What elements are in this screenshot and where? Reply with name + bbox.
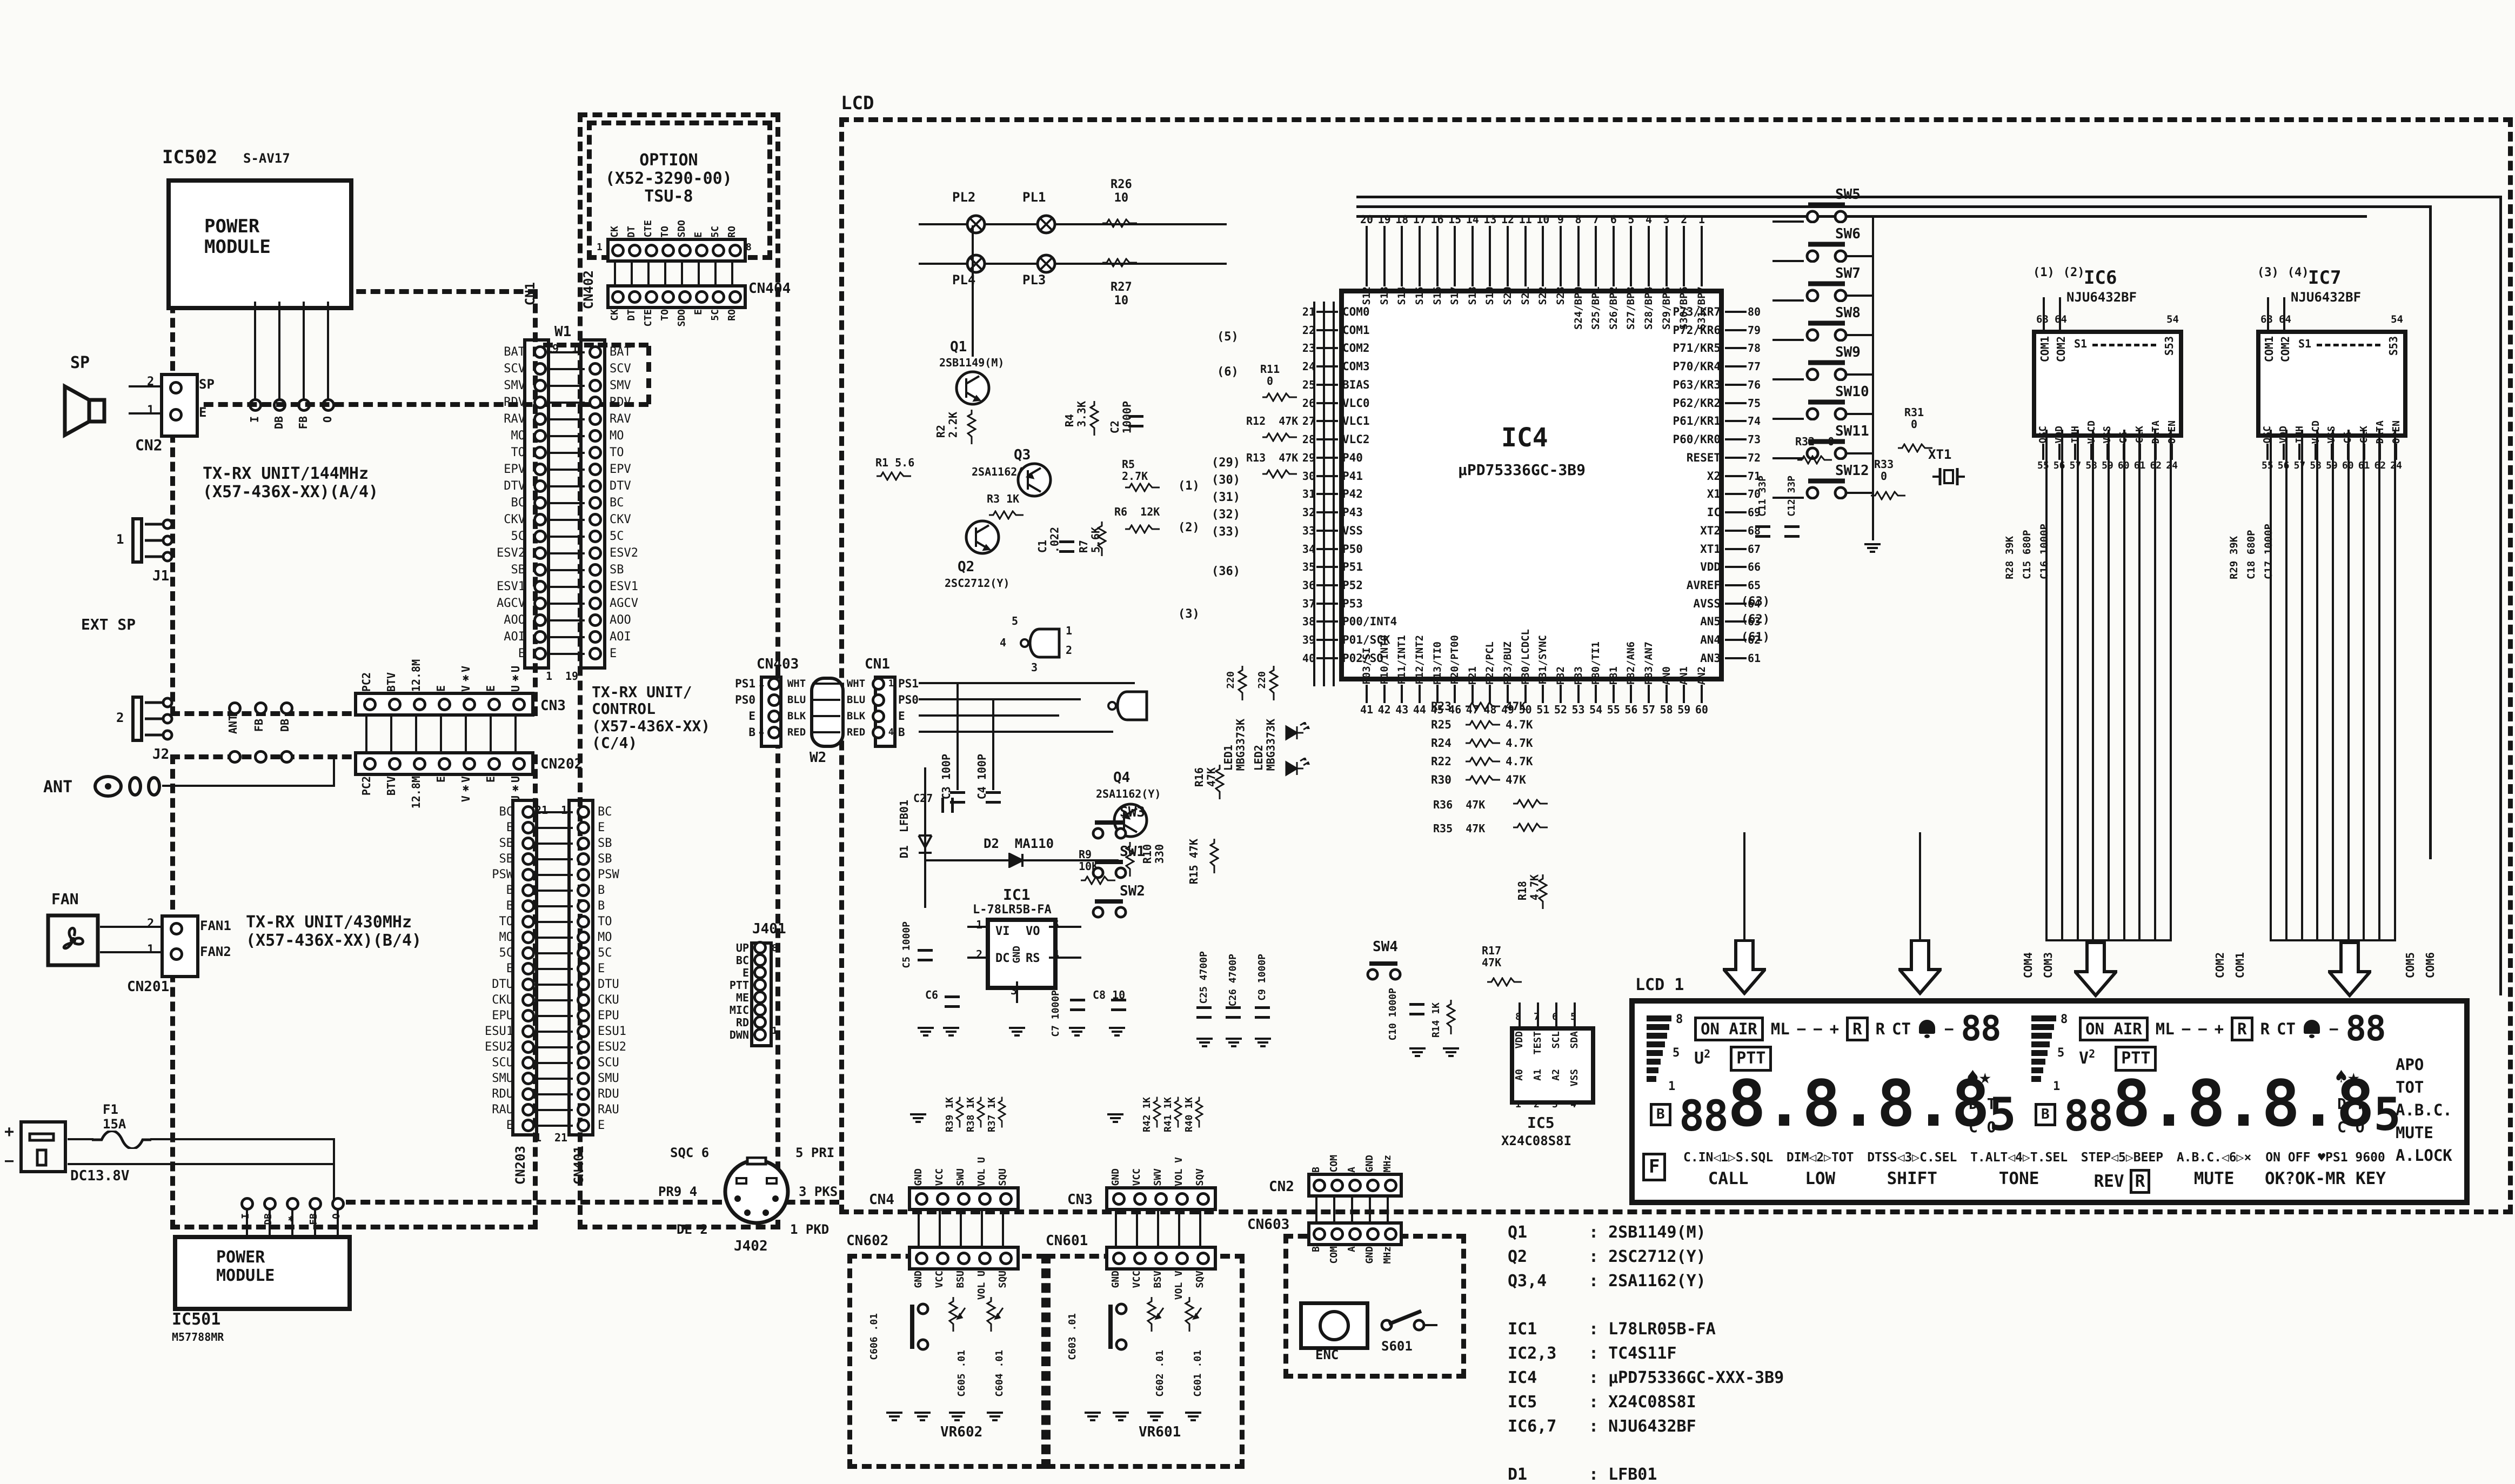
r20-resistor [1238, 666, 1247, 700]
cn1w1-row: SMV SMV [457, 377, 678, 394]
wire-tag-3: (3) [1178, 608, 1200, 621]
tsu8-pin-label: CTE [640, 189, 657, 238]
ic4-right-pin: P63/KR376 [1673, 378, 1771, 392]
bell-icon [2303, 1020, 2322, 1038]
ic4-left-pin: 29P40 [1292, 451, 1397, 465]
cn202-pin [407, 757, 432, 771]
cn203-row: MO MO [445, 930, 666, 945]
cn602-label: CN602 [846, 1233, 888, 1249]
c603-label: C603 .01 [1067, 1313, 1078, 1360]
c12-label: C12 33P [1787, 476, 1797, 517]
cn203-row: SB SB [445, 851, 666, 867]
cn403-row: PS1 1 WHT WHT 1 PS1 [708, 676, 919, 692]
s601-label: S601 [1381, 1339, 1413, 1354]
tsu8-pin-label: TO [657, 189, 673, 238]
ic4-bottom-pin: P3353 [1570, 595, 1587, 716]
q1-label: Q1 [950, 339, 967, 355]
tsu8-pin-label: RO [724, 189, 740, 238]
lcd1-display: 8 5 1 B ON AIR ML−−+ R RCT − 88 U2 PTT 8… [1629, 998, 2470, 1205]
dc-138v-label: DC13.8V [70, 1168, 130, 1184]
cn603-pin-label: MHz [1379, 1246, 1396, 1300]
j401-row: ME [697, 991, 767, 1004]
b-annunciator: B [2035, 1103, 2056, 1126]
cn603-pin-label: A [1343, 1246, 1361, 1300]
c7-label: C7 1000P [1051, 990, 1061, 1037]
r-box-annunciator: R [2231, 1017, 2253, 1041]
ic5-part-label: X24C08S8I [1501, 1134, 1571, 1148]
cn404-pin-label: E [690, 309, 707, 358]
c602-label: C602 .01 [1155, 1350, 1166, 1397]
s-meter-u [1647, 1015, 1671, 1082]
fan-label: FAN [51, 891, 79, 907]
lcd1-label: LCD 1 [1635, 976, 1684, 994]
frequency-digits-u: 88 8.8.8.8 5 [1679, 1066, 2015, 1141]
cn403-label: CN403 [757, 657, 799, 672]
cn3-cn202-pair: PC2BTV12.8MEV✱VEU✱U PC2BTV12.8MEV✱VEU✱U [354, 638, 534, 830]
lcd-driver-ic: (3)(4) IC7 NJU6432BF 636454 COM1COM2 S1S… [2256, 330, 2407, 438]
lcd-half-u: 8 5 1 B ON AIR ML−−+ R RCT − 88 U2 PTT 8… [1644, 1008, 2017, 1146]
r35-label: R35 47K [1433, 823, 1485, 834]
bell-icon [1918, 1020, 1937, 1038]
parts-row: D1: LFB01 [1508, 1462, 1784, 1484]
c1-capacitor [1059, 540, 1074, 553]
ic4-bottom-pin: P80/TI154 [1588, 595, 1604, 716]
switch: SW1 [1087, 844, 1179, 883]
unit144-label: TX-RX UNIT/144MHz (X57-436X-XX)(A/4) [203, 465, 378, 501]
ic502-pin-db: DB [273, 416, 285, 429]
cn202-pin [382, 757, 407, 771]
r21-resistor [1269, 666, 1279, 700]
r42-label: R42 1K [1142, 1097, 1153, 1132]
cn403-cn1-label: CN1 [865, 657, 890, 672]
cn1w1-row: ESV1 ESV1 [457, 578, 678, 595]
db-tap-label: DB [279, 719, 291, 732]
j401-row: RD [697, 1016, 767, 1028]
r11-label: R11 0 [1260, 363, 1280, 387]
ext-sp-label: EXT SP [81, 616, 136, 633]
cn203-row: E E [445, 961, 666, 977]
tsu8-pin-label: 5C [707, 189, 724, 238]
cn203-row: DTU DTU [445, 977, 666, 992]
ic4-left-pin: 34P50 [1292, 542, 1397, 556]
r2-label: R2 2.2K [935, 412, 959, 438]
schematic-canvas: LCD TX-RX UNIT/144MHz (X57-436X-XX)(A/4)… [0, 0, 2515, 1484]
xt1-crystal-icon [1932, 466, 1965, 487]
f-annunciator: F [1642, 1153, 1666, 1181]
j401-row: UP [697, 941, 767, 954]
sw4-switch-icon [1362, 959, 1421, 981]
wire-tag-1: (1) [1178, 480, 1200, 493]
cn202-pin-label: E [478, 776, 503, 830]
c25-label: C25 4700P [1199, 951, 1209, 1004]
j402-pr9: PR9 4 [658, 1185, 697, 1199]
tsu8-pin [643, 244, 660, 257]
cn3-pin-label: U✱U [503, 638, 528, 692]
ic4-bottom-pin: P11/INT143 [1394, 595, 1410, 716]
q1-transistor-icon [953, 369, 992, 407]
cn3-pin [407, 698, 432, 711]
speaker-icon [59, 376, 130, 446]
ic4-left-pin: 22COM1 [1292, 323, 1397, 337]
lcd-driver-ic: (1)(2) IC6 NJU6432BF 636454 COM1COM2 S1S… [2032, 330, 2183, 438]
ic4-bottom-pin: P8155 [1606, 595, 1622, 716]
cn2b-pin-label: COM [1325, 1119, 1343, 1173]
c10-capacitor [1409, 1003, 1424, 1015]
c605-label: C605 .01 [956, 1350, 967, 1397]
parts-row: Q2: 2SC2712(Y) [1508, 1245, 1784, 1269]
r31-label: R31 0 [1904, 406, 1924, 431]
lcd-outline-label: LCD [841, 93, 874, 113]
cn203-row: TO TO [445, 914, 666, 930]
cn202-pin [506, 757, 531, 771]
ic4-bottom-pin: P83/AN757 [1641, 595, 1657, 716]
cn401-label: CN401 [572, 1146, 586, 1185]
cn2b-pin-label: A [1343, 1119, 1361, 1173]
j402-pri: 5 PRI [795, 1146, 834, 1160]
j1-label: J1 [152, 569, 169, 584]
ic4-top-pin: 8S24/BP0 [1570, 213, 1587, 330]
cn1w1-row: SB SB [457, 561, 678, 578]
ic4-right-pin: P62/KR275 [1673, 396, 1771, 410]
cn4-label: CN4 [869, 1192, 894, 1208]
switch: SW2 [1087, 883, 1179, 923]
cn202-pin-label: U✱U [503, 776, 528, 830]
cn4-pin-label: GND [908, 1132, 929, 1186]
cn404-pin [727, 290, 744, 304]
ic4-top-pin: 14S18 [1464, 213, 1481, 330]
key-switch: SW8 [1803, 305, 1895, 344]
r39-label: R39 1K [945, 1097, 955, 1132]
bus-arrow-icon [2074, 941, 2117, 998]
led2-icon [1282, 758, 1314, 788]
ic4-left-pin: 28VLC2 [1292, 432, 1397, 446]
ic4-left-pin: 35P51 [1292, 560, 1397, 574]
q4-label: Q4 [1113, 770, 1130, 786]
pullup-resistor-row: R25 4.7K [1431, 716, 1533, 734]
c11-label: C11 33P [1757, 476, 1768, 517]
cn2-e-pin-label: E [199, 405, 206, 420]
pl4-lamp-icon [965, 253, 987, 275]
ic4-left-pin: 30P41 [1292, 469, 1397, 483]
cn203-row: SCU SCU [445, 1055, 666, 1071]
ic4-top-pin: 6S26/BP2 [1606, 213, 1622, 330]
r27-resistor [1102, 258, 1137, 268]
tsu8-pin-label: SDO [673, 189, 690, 238]
led1-label: LED1 MBG3373K [1222, 719, 1247, 771]
com4-tag: COM4 [2022, 952, 2034, 978]
cn603-pin-label: B [1307, 1246, 1325, 1300]
r20-label: 220 [1226, 671, 1236, 689]
fb-tap-label: FB [253, 719, 265, 732]
lcd-key-label: T.ALT◁4▷T.SEL TONE [1970, 1151, 2068, 1194]
r-box-annunciator: R [1846, 1017, 1868, 1041]
cn203-row: ESU2 ESU2 [445, 1039, 666, 1055]
cn403-row: B 4 RED RED 4 B [708, 724, 919, 740]
cn404-pin-label: SDO [673, 309, 690, 358]
cn203-label: CN203 [513, 1146, 528, 1185]
cn404-pin [643, 290, 660, 304]
cn203-row: ESU1 ESU1 [445, 1024, 666, 1039]
cn404-pin [626, 290, 643, 304]
r15-label: R15 47K [1188, 839, 1200, 884]
power-module-label: POWER MODULE [204, 216, 271, 257]
r3-resistor [989, 510, 1024, 520]
ant-tap-label: ANT [227, 714, 239, 734]
parts-row: IC5: X24C08S8I [1508, 1390, 1784, 1414]
cn4-cn602-pair: GNDVCCSWUVOL USQU GNDVCCBSUVOL USQU [908, 1132, 1020, 1325]
r38-label: R38 1K [966, 1097, 976, 1132]
fuse-icon [92, 1131, 151, 1149]
ic5-label: IC5 [1527, 1114, 1555, 1131]
cn4-pin-label: VOL U [971, 1132, 992, 1186]
tsu8-pin-label: CK [606, 189, 623, 238]
parts-row: Q1: 2SB1149(M) [1508, 1220, 1784, 1245]
ic501-pin-db: DB [263, 1213, 274, 1225]
cn3-pin [506, 698, 531, 711]
com5-tag: COM5 [2404, 952, 2416, 978]
r32-resistor [1797, 455, 1832, 465]
cn3-pin-label: V✱V [453, 638, 478, 692]
cn1-label: CN1 [523, 282, 538, 305]
cn404-pin-label: CTE [640, 309, 657, 358]
cn404-pin [677, 290, 693, 304]
sw4-label: SW4 [1373, 939, 1398, 955]
tsu8-cn404-pair: CKDTCTETOSDOE5CRO CKDTCTETOSDOE5CRO [606, 189, 747, 358]
key-switch: SW6 [1803, 226, 1895, 265]
unit-ctrl-label: TX-RX UNIT/ CONTROL (X57-436X-XX) (C/4) [592, 684, 710, 751]
ic4-left-pin: 25BIAS [1292, 378, 1397, 392]
pullup-resistor-row: R24 4.7K [1431, 734, 1533, 752]
battery-icon [19, 1120, 68, 1174]
r14-resistor [1446, 1000, 1456, 1034]
com3-tag: COM3 [2042, 952, 2054, 978]
r1-resistor [877, 471, 911, 481]
j1-num: 1 [116, 532, 124, 547]
vr601-switch [1106, 1297, 1128, 1356]
cn3-pin [382, 698, 407, 711]
tsu8-pin [677, 244, 693, 257]
r4-resistor [1089, 401, 1099, 436]
ic1-label: IC1 [1003, 886, 1031, 903]
ic1-part-label: L-78LR5B-FA [973, 904, 1052, 917]
tsu8-pin-label: E [690, 189, 707, 238]
key-switch: SW5 [1803, 186, 1895, 226]
cn202-pin [432, 757, 457, 771]
c604-label: C604 .01 [994, 1350, 1005, 1397]
ic501-pin-i: I [240, 1213, 251, 1219]
jack-j2-icon [130, 692, 178, 746]
cn1w1-row: SCV SCV [457, 360, 678, 377]
cn202-pin-label: BTV [379, 776, 404, 830]
pullup-resistor-row: R30 47K [1431, 771, 1533, 789]
com2-tag: COM2 [2214, 952, 2226, 978]
cn3b-pin-label: SQV [1189, 1132, 1210, 1186]
ic4-top-pin: 12S20 [1500, 213, 1516, 330]
ic502-pin-i: I [249, 416, 260, 423]
on-air-annunciator: ON AIR [2079, 1017, 2149, 1041]
fan-icon [46, 913, 100, 967]
ic501-part-label: M57788MR [172, 1331, 224, 1343]
cn1w1-row: CKV CKV [457, 511, 678, 528]
parts-row: IC2,3: TC4S11F [1508, 1341, 1784, 1366]
ic4-right-pin: P73/KR780 [1673, 305, 1771, 319]
key-switch: SW9 [1803, 344, 1895, 384]
r15-resistor [1209, 839, 1219, 873]
ic4-right-pin: P60/KR073 [1673, 432, 1771, 446]
r5-label: R5 2.7K [1122, 458, 1148, 483]
nand-gate-1-icon [1016, 627, 1062, 659]
r18-label: R18 4.7K [1516, 874, 1541, 900]
pl2-lamp-icon [965, 213, 987, 235]
ic501-pin-x: ✱ [286, 1213, 297, 1225]
ic4-label: IC4 [1501, 424, 1548, 453]
ic4-bottom-pin: P31/SYNC51 [1535, 595, 1551, 716]
ic4-top-pin: 17S15 [1412, 213, 1428, 330]
ic4-right-pin: P61/KR174 [1673, 414, 1771, 428]
cn1w1-row: AOO AOO [457, 612, 678, 629]
wire-tag-2: (2) [1178, 522, 1200, 535]
r12-resistor [1262, 432, 1297, 442]
ic4-left-pin: 31P42 [1292, 487, 1397, 501]
parts-row: IC4: µPD75336GC-XXX-3B9 [1508, 1366, 1784, 1390]
cn202-pin [457, 757, 481, 771]
lcd-key-label: STEP◁5▷BEEP REVR [2081, 1151, 2163, 1194]
q3-transistor-icon [1015, 460, 1054, 499]
pl3-label: PL3 [1022, 273, 1046, 288]
r16-resistor [1215, 765, 1225, 799]
tsu8-pin [610, 244, 626, 257]
r16-label: R16 47K [1193, 767, 1218, 787]
r17-resistor [1487, 977, 1522, 987]
lcd-half-v: 8 5 1 B ON AIR ML−−+ R RCT − 88 V2 PTT 8… [2029, 1008, 2386, 1146]
c6-label: C6 [925, 989, 938, 1001]
cn2b-pin-label: MHz [1379, 1119, 1396, 1173]
com1-tag: COM1 [2234, 952, 2246, 978]
cn404-label: CN404 [748, 281, 791, 297]
r5-resistor [1125, 483, 1160, 492]
encoder-knob-icon [1319, 1310, 1350, 1341]
ic502-pin-o: O [322, 416, 333, 423]
j401-row: BC [697, 954, 767, 966]
c5-label: C5 1000P [901, 921, 912, 968]
vr601-label: VR601 [1139, 1425, 1181, 1440]
cn2-label: CN2 [135, 437, 163, 453]
parts-row: IC6,7: NJU6432BF [1508, 1414, 1784, 1439]
ic4-left-pin: 21COM0 [1292, 305, 1397, 319]
ic4-left-pin: 26VLC0 [1292, 396, 1397, 410]
f1-fuse-label: F1 15A [103, 1102, 126, 1132]
c26-label: C26 4700P [1228, 954, 1239, 1007]
lcd-key-label: ON OFF ♥PS1 9600 OK?OK-MR KEY [2265, 1151, 2386, 1194]
ic4-right-pin: AVREF65 [1687, 578, 1771, 592]
pl2-label: PL2 [952, 190, 975, 205]
cn402-label: CN402 [581, 270, 596, 309]
cn404-pin [660, 290, 677, 304]
ic4-bottom-pin: P3252 [1553, 595, 1569, 716]
cn2-pin1-num: 1 [147, 404, 154, 418]
ic4-right-pin: P72/KR679 [1673, 323, 1771, 337]
j401-row: E [697, 966, 767, 979]
cn203-row: SB SB [445, 835, 666, 851]
cn1w1-row: RAV RAV [457, 411, 678, 427]
d2-diode-icon [1004, 853, 1030, 868]
r26-label: R26 10 [1111, 178, 1132, 205]
cn202-pin-label: PC2 [354, 776, 379, 830]
enc-label: ENC [1315, 1348, 1339, 1362]
cn3-pin-label: 12.8M [404, 638, 429, 692]
c10-label: C10 1000P [1388, 988, 1399, 1041]
cn403-row: E BLK BLK E [708, 708, 919, 724]
cn1w1-row: EPV EPV [457, 461, 678, 478]
alarm-digits: 88 [2345, 1009, 2385, 1049]
cn601-label: CN601 [1046, 1233, 1088, 1249]
cn4-pin-label: VCC [929, 1132, 950, 1186]
j402-din-icon [721, 1157, 792, 1227]
cn1w1-row: 5C 5C [457, 528, 678, 545]
cn3b-pin-label: SWV [1147, 1132, 1168, 1186]
cn3-pin [357, 698, 382, 711]
cn1w1-row: AGCV AGCV [457, 595, 678, 612]
r1-label: R1 5.6 [875, 457, 914, 469]
vr602-pot2 [985, 1297, 1006, 1340]
ic4-top-pin: 13S19 [1482, 213, 1498, 330]
ic502-pin-fb: FB [297, 416, 309, 429]
encoder-box [1299, 1301, 1369, 1350]
j401-label: J401 [752, 921, 786, 937]
j402-de: DE 2 [677, 1222, 708, 1237]
ic502-part-label: S-AV17 [243, 151, 290, 166]
c27-label: C27 [913, 792, 933, 804]
cn603-pin-label: GND [1361, 1246, 1379, 1300]
cn1w1-row: RDV RDV [457, 394, 678, 411]
r37-label: R37 1K [987, 1097, 998, 1132]
s601-switch-icon [1379, 1308, 1439, 1332]
ic4-bottom-pin: P10/INT042 [1376, 595, 1393, 716]
cn203-row: B B [445, 898, 666, 914]
r33-label: R33 0 [1874, 458, 1894, 483]
vr601-pot2 [1183, 1297, 1205, 1340]
cn3-label: CN3 [540, 698, 566, 714]
r36-resistor [1513, 799, 1548, 808]
r2-resistor [967, 410, 976, 444]
ic4-left-pin: 23COM2 [1292, 341, 1397, 355]
r40-label: R40 1K [1184, 1097, 1195, 1132]
cn2b-cn603-pair: BCOMAGNDMHz BCOMAGNDMHz [1307, 1119, 1403, 1300]
r4-label: R4 3.3K [1063, 401, 1088, 427]
cn2b-pin-label: B [1307, 1119, 1325, 1173]
cn2b-pin-label: GND [1361, 1119, 1379, 1173]
cn404-pin-label: DT [623, 309, 640, 358]
ic4-right-pin: AN361 [1700, 651, 1771, 665]
r35-resistor [1513, 823, 1548, 832]
cn603-label: CN603 [1247, 1217, 1289, 1233]
lcd-key-label: C.IN◁1▷S.SQL CALL [1683, 1151, 1773, 1194]
ic4-bottom-pin: AN260 [1694, 595, 1710, 716]
cn3-pin [481, 698, 506, 711]
cn4-pin-label: SQU [992, 1132, 1013, 1186]
tsu8-pin [626, 244, 643, 257]
battery-plus: + [4, 1123, 14, 1141]
cn2b-label: CN2 [1269, 1179, 1294, 1195]
cn404-pin-label: CK [606, 309, 623, 358]
ic4-bottom-pin: AN058 [1658, 595, 1675, 716]
ic4-left-pin: 24COM3 [1292, 359, 1397, 373]
cn3b-cn601-pair: GNDVCCSWVVOL VSQV GNDVCCBSVVOL VSQV [1105, 1132, 1217, 1325]
ic4-top-pin: 9S23 [1553, 213, 1569, 330]
cn202-label: CN202 [540, 757, 583, 772]
cn4-pin-label: SWU [950, 1132, 971, 1186]
parts-row: Q3,4: 2SA1162(Y) [1508, 1269, 1784, 1293]
